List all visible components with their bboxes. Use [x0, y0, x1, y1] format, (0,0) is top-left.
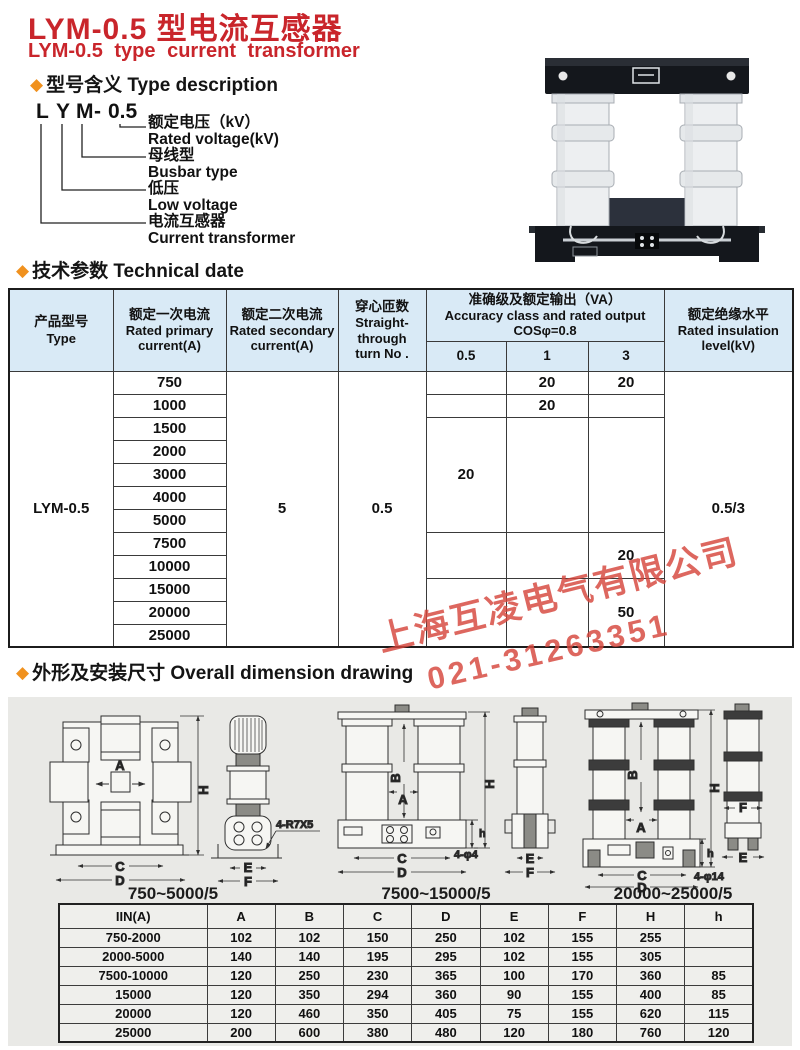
primary-cell: 2000: [113, 440, 226, 463]
dim-cell: 405: [412, 1004, 480, 1023]
dim-col-header: B: [275, 904, 343, 928]
dim-cell: 180: [548, 1023, 616, 1042]
dim-cell: 102: [480, 947, 548, 966]
primary-cell: 750: [113, 371, 226, 394]
primary-cell: 5000: [113, 509, 226, 532]
section-title-text: 型号含义 Type description: [46, 70, 278, 97]
model-diagram: L Y M - 0.5 额定电压（kV） Rated voltage(kV) 母…: [28, 100, 458, 265]
acc-col-05: 0.5: [426, 341, 506, 371]
dim-cell: 350: [275, 985, 343, 1004]
dim-cell: 195: [344, 947, 412, 966]
model-labels: 额定电压（kV） Rated voltage(kV) 母线型 Busbar ty…: [148, 115, 295, 247]
dim-cell: 360: [412, 985, 480, 1004]
primary-cell: 3000: [113, 463, 226, 486]
dim-label-H: H: [707, 783, 722, 792]
dim-cell: 294: [344, 985, 412, 1004]
col-header-primary: 额定一次电流 Rated primary current(A): [113, 289, 226, 371]
table-header-row: IIN(A) A B C D E F H h: [59, 904, 753, 928]
dim-label-D: D: [115, 873, 124, 888]
primary-cell: 1000: [113, 394, 226, 417]
acc-cell: 20: [506, 394, 588, 417]
dim-label-A: A: [398, 792, 408, 807]
drawing-750-5000-front: A H C D: [50, 716, 211, 888]
dimension-drawings: A H C D: [8, 700, 792, 905]
dim-cell: 360: [617, 966, 685, 985]
dim-cell: 120: [685, 1023, 753, 1042]
dim-cell: 120: [207, 1004, 275, 1023]
dim-label-E: E: [739, 850, 748, 865]
section-dimension-drawing: ◆ 外形及安装尺寸 Overall dimension drawing: [16, 658, 413, 685]
primary-cell: 4000: [113, 486, 226, 509]
dim-col-header: C: [344, 904, 412, 928]
table-row: 20000 120 460 350 405 75 155 620 115: [59, 1004, 753, 1023]
dim-cell: 120: [207, 985, 275, 1004]
col-header-secondary: 额定二次电流 Rated secondary current(A): [226, 289, 338, 371]
dim-cell: 102: [207, 928, 275, 947]
dim-cell: 155: [548, 928, 616, 947]
dim-cell: 155: [548, 1004, 616, 1023]
datasheet-page: LYM-0.5 型电流互感器 LYM-0.5 type current tran…: [0, 0, 800, 1050]
dim-label-h: h: [707, 848, 714, 860]
acc-cell: [588, 394, 664, 417]
dimension-table: IIN(A) A B C D E F H h 750-2000 102 102 …: [58, 903, 754, 1043]
product-photo: [505, 28, 790, 263]
dim-label-F: F: [739, 800, 747, 815]
dim-cell: 140: [207, 947, 275, 966]
primary-cell: 25000: [113, 624, 226, 647]
dim-col-header: A: [207, 904, 275, 928]
label-zh: 电流互感器: [148, 214, 295, 231]
col-header-insulation: 额定绝缘水平 Rated insulation level(kV): [664, 289, 793, 371]
model-label-item: 母线型 Busbar type: [148, 148, 295, 181]
dim-cell: 250: [275, 966, 343, 985]
dim-cell: 295: [412, 947, 480, 966]
dim-cell: 20000: [59, 1004, 207, 1023]
insulation-cell: 0.5/3: [664, 371, 793, 647]
dim-cell: 200: [207, 1023, 275, 1042]
label-zh: 低压: [148, 181, 295, 198]
acc-cell: [426, 371, 506, 394]
secondary-cell: 5: [226, 371, 338, 647]
page-subtitle: LYM-0.5 type current transformer: [28, 40, 360, 63]
model-label-item: 额定电压（kV） Rated voltage(kV): [148, 115, 295, 148]
dim-cell: 115: [685, 1004, 753, 1023]
dim-cell: 102: [480, 928, 548, 947]
table-row: LYM-0.5 750 5 0.5 20 20 0.5/3: [9, 371, 793, 394]
dim-cell: 750-2000: [59, 928, 207, 947]
note-4-R7X5: 4-R7X5: [276, 819, 313, 831]
dim-cell: 400: [617, 985, 685, 1004]
dim-label-E: E: [244, 860, 253, 875]
transformer-photo-graphic: [529, 58, 765, 262]
acc-cell: [426, 394, 506, 417]
dim-label-F: F: [526, 865, 534, 880]
primary-cell: 7500: [113, 532, 226, 555]
acc-col-3: 3: [588, 341, 664, 371]
dim-cell: 250: [412, 928, 480, 947]
acc-cell: [588, 417, 664, 532]
dim-cell: 155: [548, 947, 616, 966]
table-row: 15000 120 350 294 360 90 155 400 85: [59, 985, 753, 1004]
label-en: Busbar type: [148, 165, 295, 182]
dim-cell: 75: [480, 1004, 548, 1023]
diamond-icon: ◆: [16, 262, 29, 279]
dim-col-header: h: [685, 904, 753, 928]
diamond-icon: ◆: [30, 76, 43, 93]
drawing-20000-25000-front: B A h H C: [583, 703, 725, 895]
acc-cell: 20: [426, 417, 506, 532]
label-en: Low voltage: [148, 198, 295, 215]
dim-label-E: E: [526, 851, 535, 866]
primary-cell: 1500: [113, 417, 226, 440]
note-4-phi4: 4-φ4: [454, 849, 479, 861]
dim-col-header: H: [617, 904, 685, 928]
dim-cell: 170: [548, 966, 616, 985]
dim-cell: 102: [275, 928, 343, 947]
dim-label-C: C: [115, 859, 125, 874]
dim-label-F: F: [244, 874, 252, 889]
dim-cell: [685, 947, 753, 966]
dim-cell: 255: [617, 928, 685, 947]
dim-label-C: C: [397, 851, 407, 866]
dim-cell: 140: [275, 947, 343, 966]
dim-cell: 365: [412, 966, 480, 985]
label-en: Rated voltage(kV): [148, 132, 295, 149]
technical-table: 产品型号 Type 额定一次电流 Rated primary current(A…: [8, 288, 794, 648]
model-label-item: 电流互感器 Current transformer: [148, 214, 295, 247]
col-header-accuracy: 准确级及额定输出（VA） Accuracy class and rated ou…: [426, 289, 664, 341]
dim-cell: 620: [617, 1004, 685, 1023]
dim-cell: 2000-5000: [59, 947, 207, 966]
acc-cell: [506, 417, 588, 532]
dim-cell: 350: [344, 1004, 412, 1023]
drawing-20000-25000-side: F E: [722, 704, 764, 865]
acc-cell: [426, 532, 506, 578]
dim-col-header: E: [480, 904, 548, 928]
primary-cell: 10000: [113, 555, 226, 578]
primary-cell: 15000: [113, 578, 226, 601]
dim-label-B: B: [625, 770, 640, 779]
dim-cell: 150: [344, 928, 412, 947]
section-title-text: 技术参数 Technical date: [32, 256, 244, 283]
dim-col-header: D: [412, 904, 480, 928]
dim-cell: 120: [207, 966, 275, 985]
model-label-item: 低压 Low voltage: [148, 181, 295, 214]
dim-cell: 25000: [59, 1023, 207, 1042]
drawing-7500-15000-front: B A h H C: [338, 705, 497, 880]
label-zh: 母线型: [148, 148, 295, 165]
caption-750-5000: 750~5000/5: [128, 884, 218, 903]
dim-col-header: IIN(A): [59, 904, 207, 928]
acc-cell: 20: [506, 371, 588, 394]
caption-7500-15000: 7500~15000/5: [381, 884, 490, 903]
dim-cell: 85: [685, 985, 753, 1004]
dim-cell: 7500-10000: [59, 966, 207, 985]
dim-cell: 230: [344, 966, 412, 985]
dim-label-H: H: [482, 779, 497, 788]
dim-cell: 100: [480, 966, 548, 985]
dim-cell: 760: [617, 1023, 685, 1042]
note-4-phi14: 4-φ14: [694, 871, 725, 883]
caption-20000-25000: 20000~25000/5: [614, 884, 733, 903]
dim-cell: 85: [685, 966, 753, 985]
dim-label-A: A: [636, 820, 646, 835]
dim-label-D: D: [397, 865, 406, 880]
primary-cell: 20000: [113, 601, 226, 624]
dim-cell: 600: [275, 1023, 343, 1042]
dim-label-H: H: [196, 785, 211, 794]
col-header-type: 产品型号 Type: [9, 289, 113, 371]
type-cell: LYM-0.5: [9, 371, 113, 647]
acc-col-1: 1: [506, 341, 588, 371]
dim-label-A: A: [115, 758, 125, 773]
dim-cell: 480: [412, 1023, 480, 1042]
dim-cell: 155: [548, 985, 616, 1004]
drawing-7500-15000-side: E F: [505, 708, 555, 880]
table-row: 2000-5000 140 140 195 295 102 155 305: [59, 947, 753, 966]
drawing-750-5000-side: E F 4-R7X5: [211, 716, 320, 889]
dim-cell: 15000: [59, 985, 207, 1004]
dim-cell: 380: [344, 1023, 412, 1042]
dim-col-header: F: [548, 904, 616, 928]
section-technical-data: ◆ 技术参数 Technical date: [16, 256, 244, 283]
acc-cell: 20: [588, 371, 664, 394]
table-row: 7500-10000 120 250 230 365 100 170 360 8…: [59, 966, 753, 985]
diamond-icon: ◆: [16, 664, 29, 681]
dim-cell: [685, 928, 753, 947]
dim-cell: 460: [275, 1004, 343, 1023]
section-type-description: ◆ 型号含义 Type description: [30, 70, 278, 97]
dim-cell: 120: [480, 1023, 548, 1042]
table-row: 750-2000 102 102 150 250 102 155 255: [59, 928, 753, 947]
dim-label-B: B: [388, 773, 403, 782]
dim-cell: 90: [480, 985, 548, 1004]
label-en: Current transformer: [148, 231, 295, 248]
dim-cell: 305: [617, 947, 685, 966]
section-title-text: 外形及安装尺寸 Overall dimension drawing: [32, 658, 413, 685]
table-row: 25000 200 600 380 480 120 180 760 120: [59, 1023, 753, 1042]
col-header-turns: 穿心匝数 Straight- through turn No .: [338, 289, 426, 371]
label-zh: 额定电压（kV）: [148, 115, 295, 132]
